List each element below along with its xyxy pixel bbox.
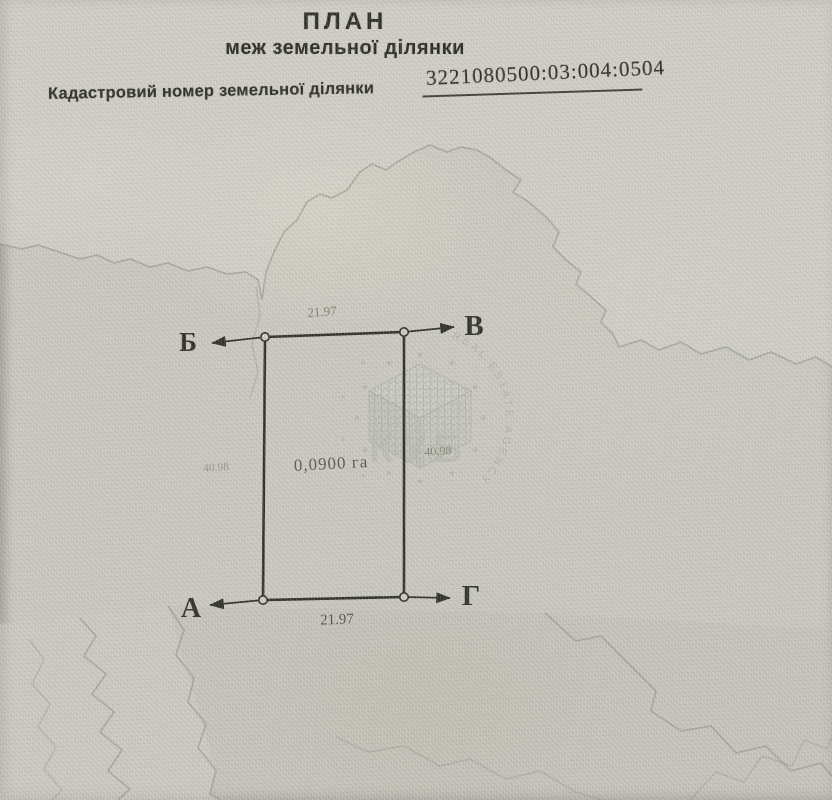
stamp-star: ★ xyxy=(385,358,393,368)
stamp-star: ★ xyxy=(471,445,479,455)
extension-arrow-bottom-right xyxy=(404,597,450,598)
area-label: 0,0900 га xyxy=(293,452,368,475)
real-estate-agency-stamp-watermark: REAL ESTATE AGENCY ★ ★ ★ ★ ★ ★ ★ ★ ★ ★ ★… xyxy=(333,330,515,505)
stamp-star: ★ xyxy=(359,358,366,367)
stamp-star: ★ xyxy=(471,382,479,392)
stamp-star: ★ xyxy=(339,393,346,402)
extension-arrow-top-left xyxy=(212,337,265,343)
scanned-cadastral-plan-page: { "header": { "title": "ПЛАН", "subtitle… xyxy=(0,0,832,800)
stamp-star: ★ xyxy=(479,413,487,423)
corner-label-top-left: Б xyxy=(179,327,197,357)
dimension-label-left: 40.98 xyxy=(203,461,230,475)
stamp-star: ★ xyxy=(353,413,361,423)
document-title: ПЛАН xyxy=(0,8,690,36)
dimension-label-bottom: 21.97 xyxy=(320,611,355,628)
stamp-center-text: КУБ xyxy=(369,427,469,471)
dimension-label-right: 40.98 xyxy=(424,443,452,459)
stamp-star: ★ xyxy=(339,435,346,444)
corner-marker-bottom-right xyxy=(400,593,408,601)
corner-marker-top-right xyxy=(400,328,408,336)
contour-line-valley-tail xyxy=(250,286,260,398)
corner-marker-bottom-left xyxy=(259,596,267,604)
stamp-star: ★ xyxy=(359,471,366,480)
stamp-star: ★ xyxy=(448,358,456,368)
extension-arrow-bottom-left xyxy=(210,600,263,605)
stamp-star: ★ xyxy=(416,476,424,486)
stamp-star: ★ xyxy=(416,350,424,360)
corner-label-bottom-right: Г xyxy=(462,580,480,612)
corner-label-top-right: В xyxy=(464,310,483,342)
stamp-star: ★ xyxy=(361,382,369,392)
corner-marker-top-left xyxy=(261,333,269,341)
document-subtitle: меж земельної ділянки xyxy=(0,37,690,60)
corner-label-bottom-left: А xyxy=(181,593,202,624)
scene-svg: REAL ESTATE AGENCY ★ ★ ★ ★ ★ ★ ★ ★ ★ ★ ★… xyxy=(0,0,832,800)
dimension-label-top: 21.97 xyxy=(307,303,338,320)
